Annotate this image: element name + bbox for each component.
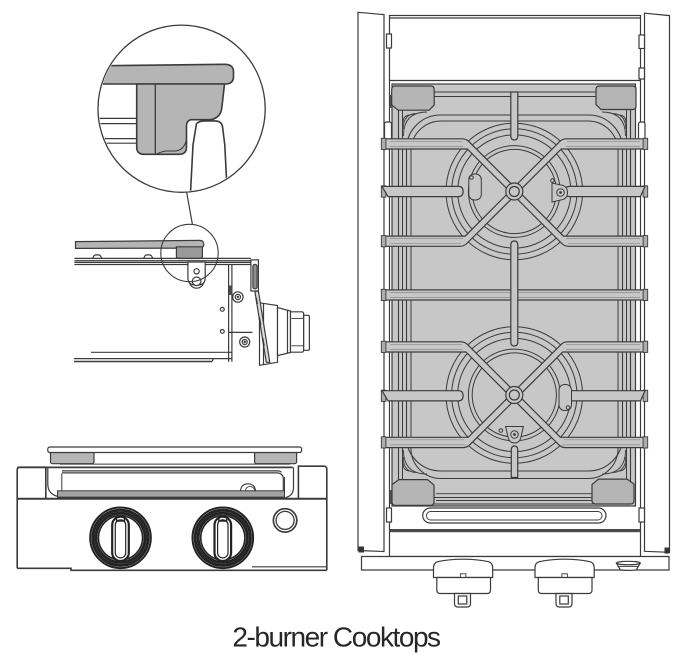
svg-text:2-burner Cooktops: 2-burner Cooktops	[232, 622, 440, 653]
